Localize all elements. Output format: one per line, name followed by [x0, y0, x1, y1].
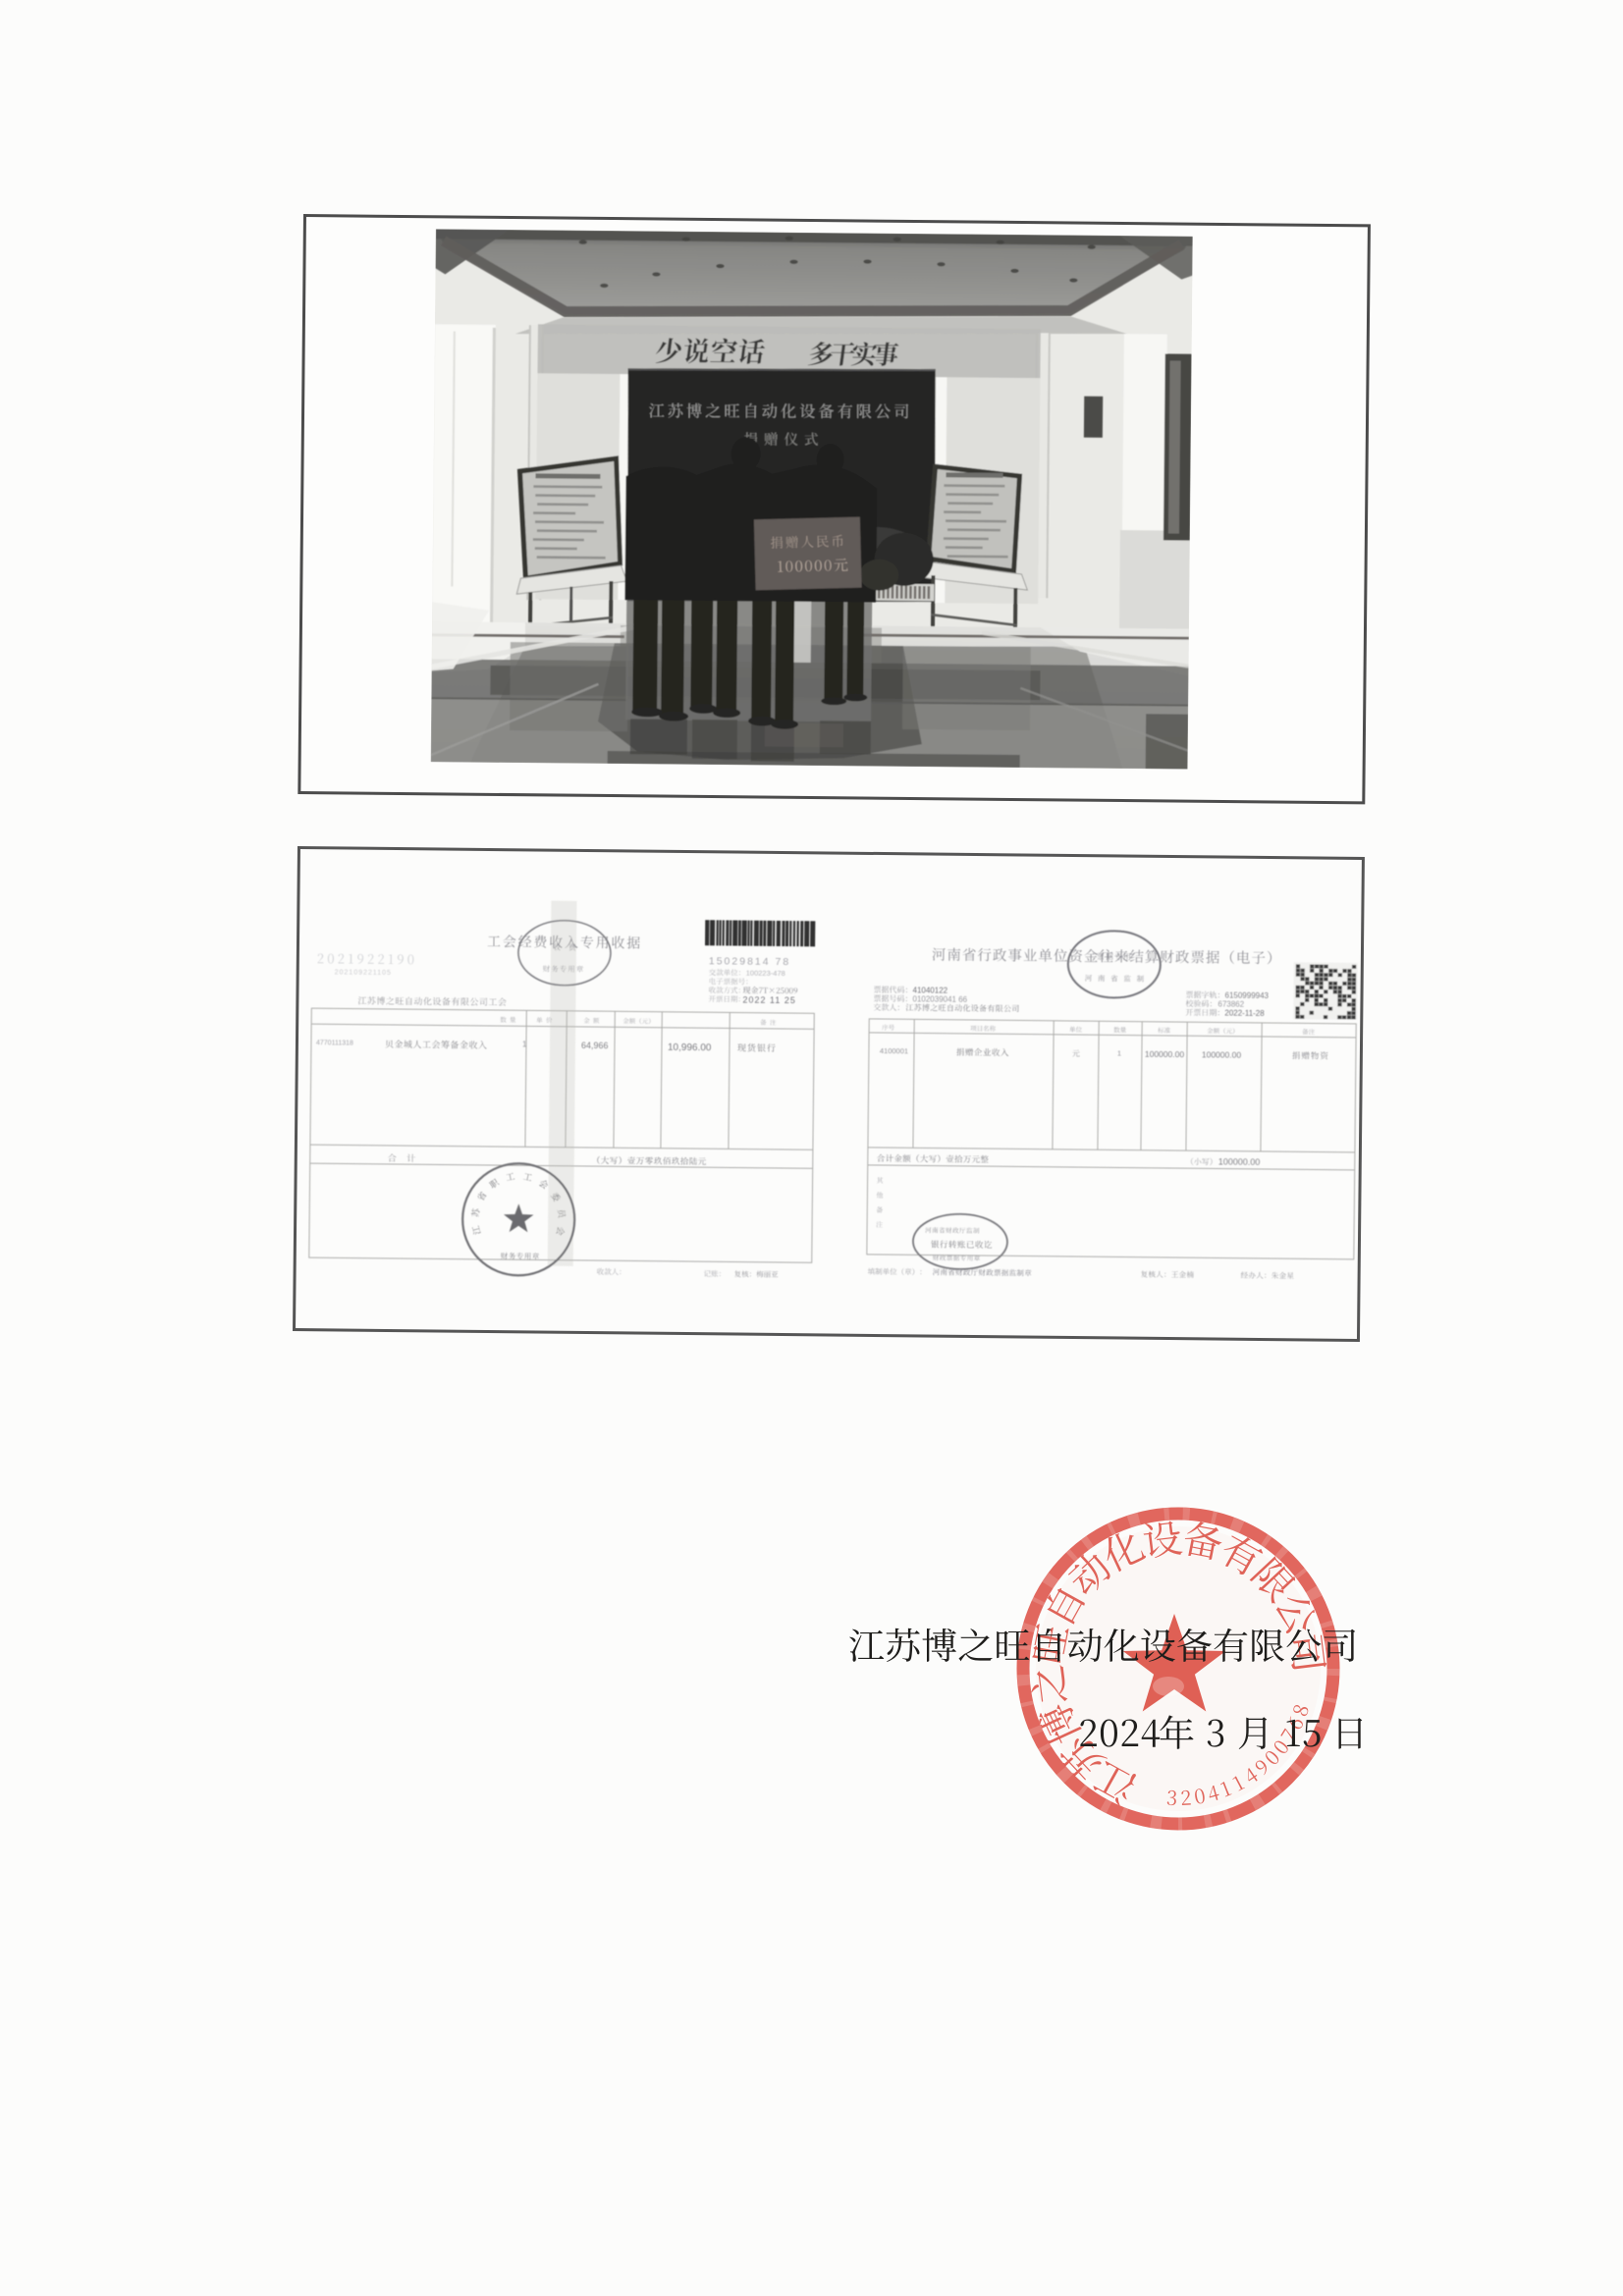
- svg-text:2022-11-28: 2022-11-28: [1224, 1009, 1265, 1018]
- svg-text:6150999943: 6150999943: [1224, 991, 1269, 1000]
- svg-text:100000.00: 100000.00: [1218, 1157, 1261, 1167]
- svg-text:100223-478: 100223-478: [746, 969, 785, 978]
- svg-text:10,996.00: 10,996.00: [668, 1042, 712, 1053]
- svg-text:0102039041 66: 0102039041 66: [912, 994, 967, 1004]
- svg-text:202109221105: 202109221105: [335, 969, 392, 977]
- svg-text:2022 11 25: 2022 11 25: [742, 995, 795, 1006]
- svg-text:41040122: 41040122: [913, 986, 948, 994]
- svg-text:64,966: 64,966: [581, 1041, 609, 1050]
- svg-text:100000.00: 100000.00: [1145, 1049, 1185, 1059]
- svg-text:100000.00: 100000.00: [1202, 1049, 1242, 1059]
- svg-text:4770111318: 4770111318: [316, 1040, 353, 1046]
- svg-text:1: 1: [1117, 1048, 1121, 1057]
- svg-text:1: 1: [522, 1040, 527, 1048]
- svg-text:15029814 78: 15029814 78: [709, 955, 790, 968]
- svg-text:673862: 673862: [1217, 999, 1244, 1008]
- svg-text:4100001: 4100001: [880, 1046, 908, 1055]
